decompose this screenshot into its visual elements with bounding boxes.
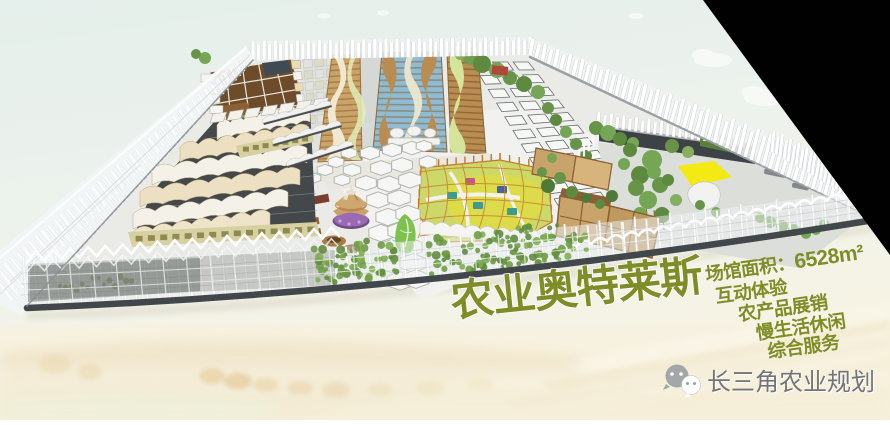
svg-text:长三角农业规划: 长三角农业规划 — [707, 369, 875, 396]
